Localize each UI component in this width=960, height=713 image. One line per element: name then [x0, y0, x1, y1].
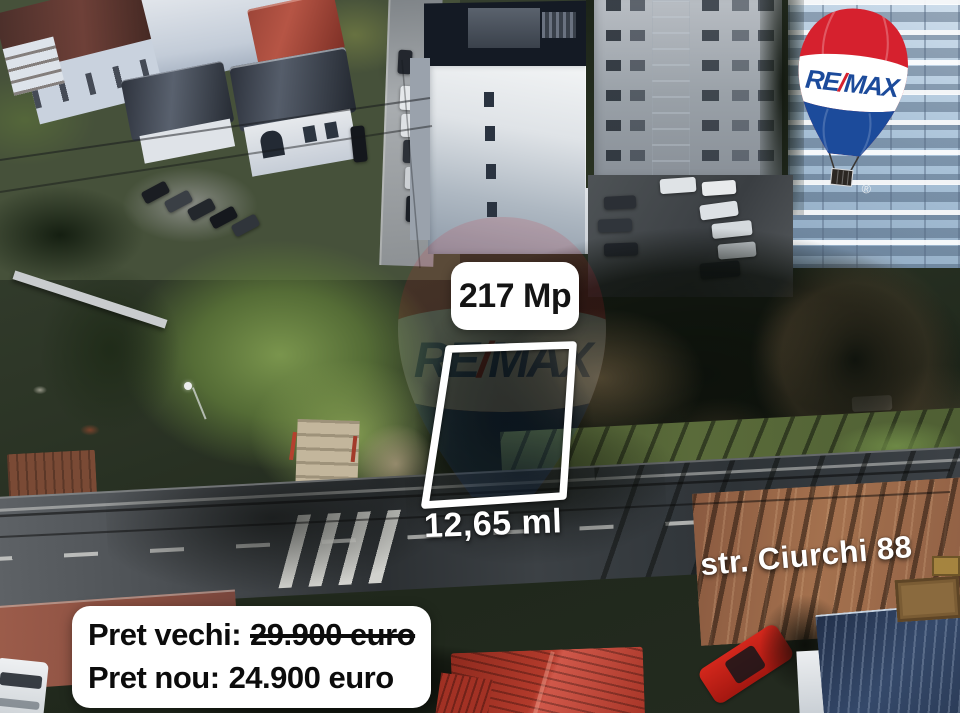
apartment-block-gray — [594, 0, 782, 188]
balloon-basket — [826, 153, 858, 186]
white-car-bottom — [0, 657, 49, 713]
remax-balloon-logo: RE/MAX ® — [775, 0, 922, 220]
aerial-photo: RE/MAX 217 Mp 12,65 ml str. Ciurchi 88 P… — [0, 0, 960, 713]
parked-car — [702, 180, 737, 196]
balloon-envelope — [775, 0, 922, 220]
white-building-window — [484, 92, 494, 107]
price-new-row: Pret nou:24.900 euro — [88, 656, 415, 699]
wooden-crates — [895, 576, 960, 622]
price-old-row: Pret vechi:29.900 euro — [88, 613, 415, 656]
white-building-window — [486, 164, 496, 179]
parked-car — [604, 195, 637, 210]
white-building-roof-vent — [542, 12, 576, 38]
area-label-badge: 217 Mp — [451, 262, 579, 330]
registered-mark: ® — [861, 182, 872, 197]
price-new-value: 24.900 euro — [229, 660, 394, 695]
area-label: 217 Mp — [459, 277, 571, 315]
street-lamp — [184, 382, 192, 390]
white-building-window — [485, 126, 495, 141]
red-roof-fragment — [435, 673, 493, 713]
parked-car — [660, 177, 697, 194]
price-old-label: Pret vechi: — [88, 617, 241, 652]
price-old-value: 29.900 euro — [250, 617, 415, 652]
frontage-label: 12,65 ml — [423, 501, 604, 546]
plot-outline — [414, 334, 590, 516]
white-building-wing — [410, 58, 430, 240]
price-new-label: Pret nou: — [88, 660, 220, 695]
house-dark-roof — [229, 47, 365, 180]
white-building-penthouse — [468, 8, 540, 48]
white-building-window — [487, 202, 497, 217]
price-card: Pret vechi:29.900 euro Pret nou:24.900 e… — [72, 606, 431, 708]
white-building-facade — [428, 66, 588, 254]
